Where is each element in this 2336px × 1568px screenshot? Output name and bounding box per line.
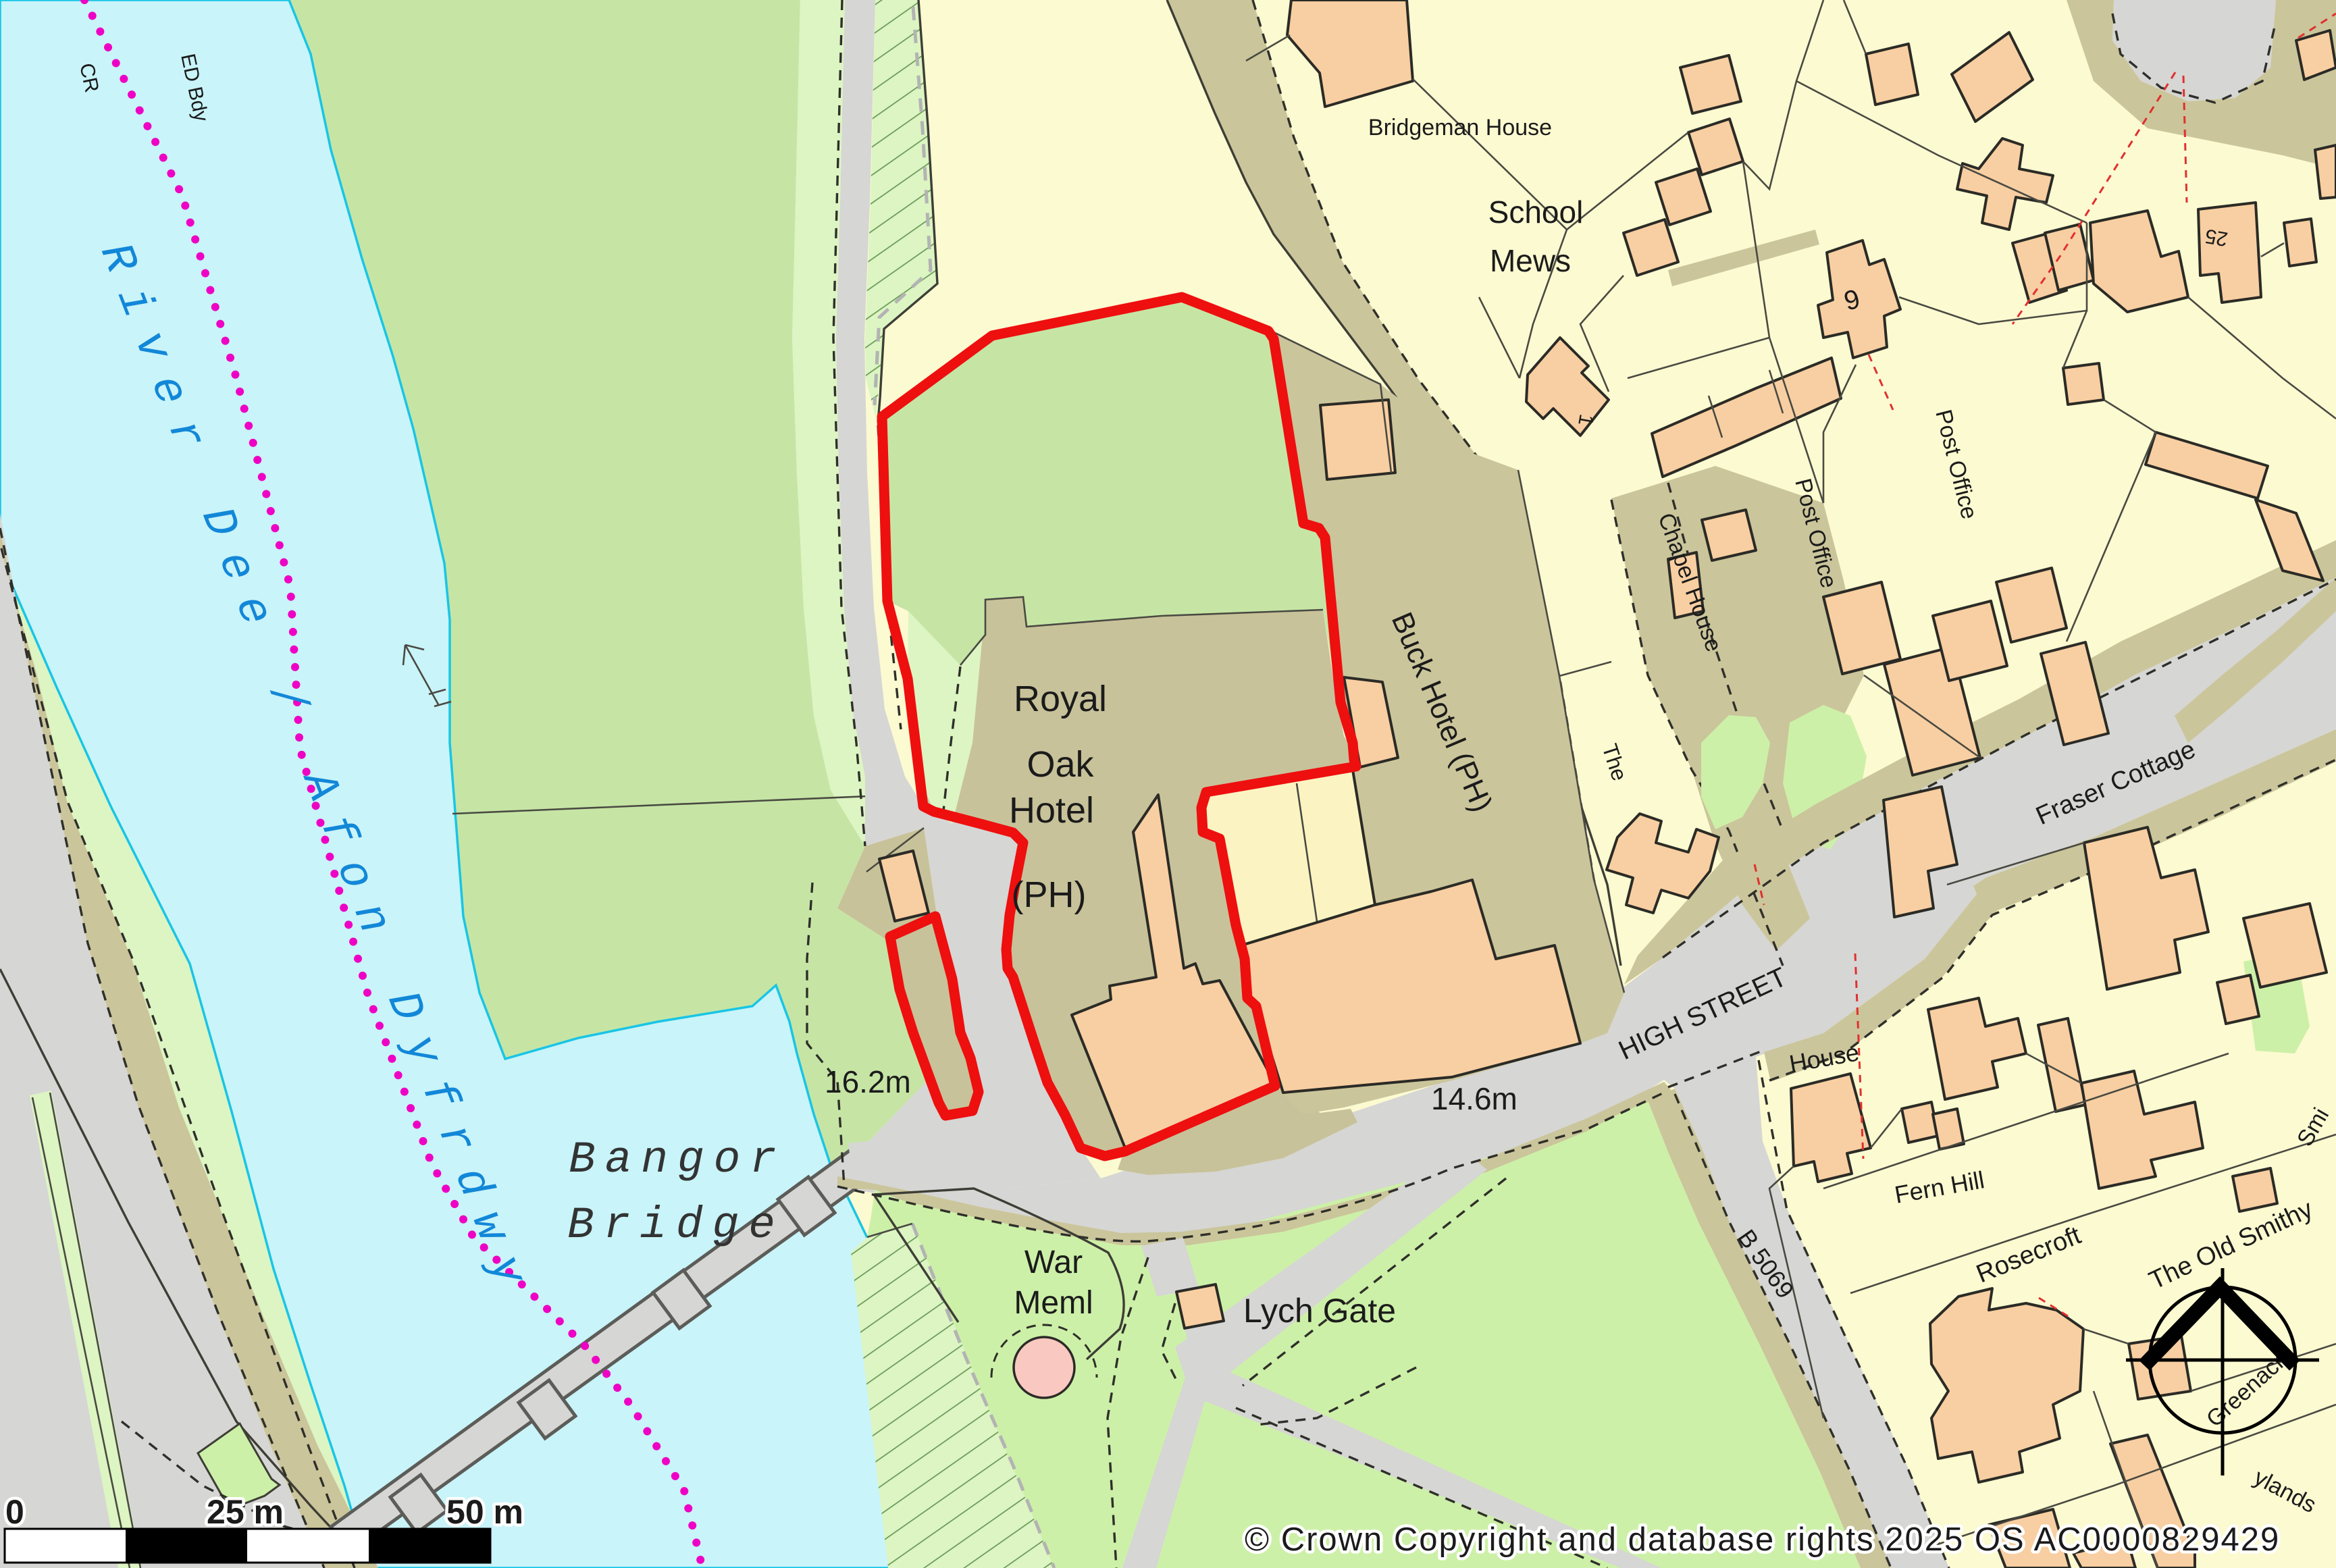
svg-text:Royal: Royal <box>1014 679 1107 719</box>
svg-text:War: War <box>1024 1245 1083 1280</box>
svg-text:16.2m: 16.2m <box>825 1064 911 1099</box>
svg-text:Oak: Oak <box>1027 744 1094 785</box>
svg-text:(PH): (PH) <box>1012 874 1087 915</box>
svg-text:Mews: Mews <box>1490 243 1571 278</box>
svg-text:0: 0 <box>5 1493 24 1531</box>
svg-text:25: 25 <box>2204 224 2230 250</box>
svg-text:25 m: 25 m <box>207 1493 284 1531</box>
svg-text:Lych Gate: Lych Gate <box>1243 1292 1396 1330</box>
svg-text:Bangor: Bangor <box>569 1134 786 1185</box>
svg-text:Bridge: Bridge <box>567 1200 785 1251</box>
svg-text:© Crown Copyright and database: © Crown Copyright and database rights 20… <box>1245 1521 2280 1558</box>
svg-text:Hotel: Hotel <box>1009 790 1094 831</box>
svg-text:50 m: 50 m <box>446 1493 523 1531</box>
svg-text:Bridgeman House: Bridgeman House <box>1368 115 1552 140</box>
svg-text:Meml: Meml <box>1014 1285 1093 1321</box>
svg-text:School: School <box>1488 194 1584 230</box>
svg-text:14.6m: 14.6m <box>1431 1081 1517 1116</box>
